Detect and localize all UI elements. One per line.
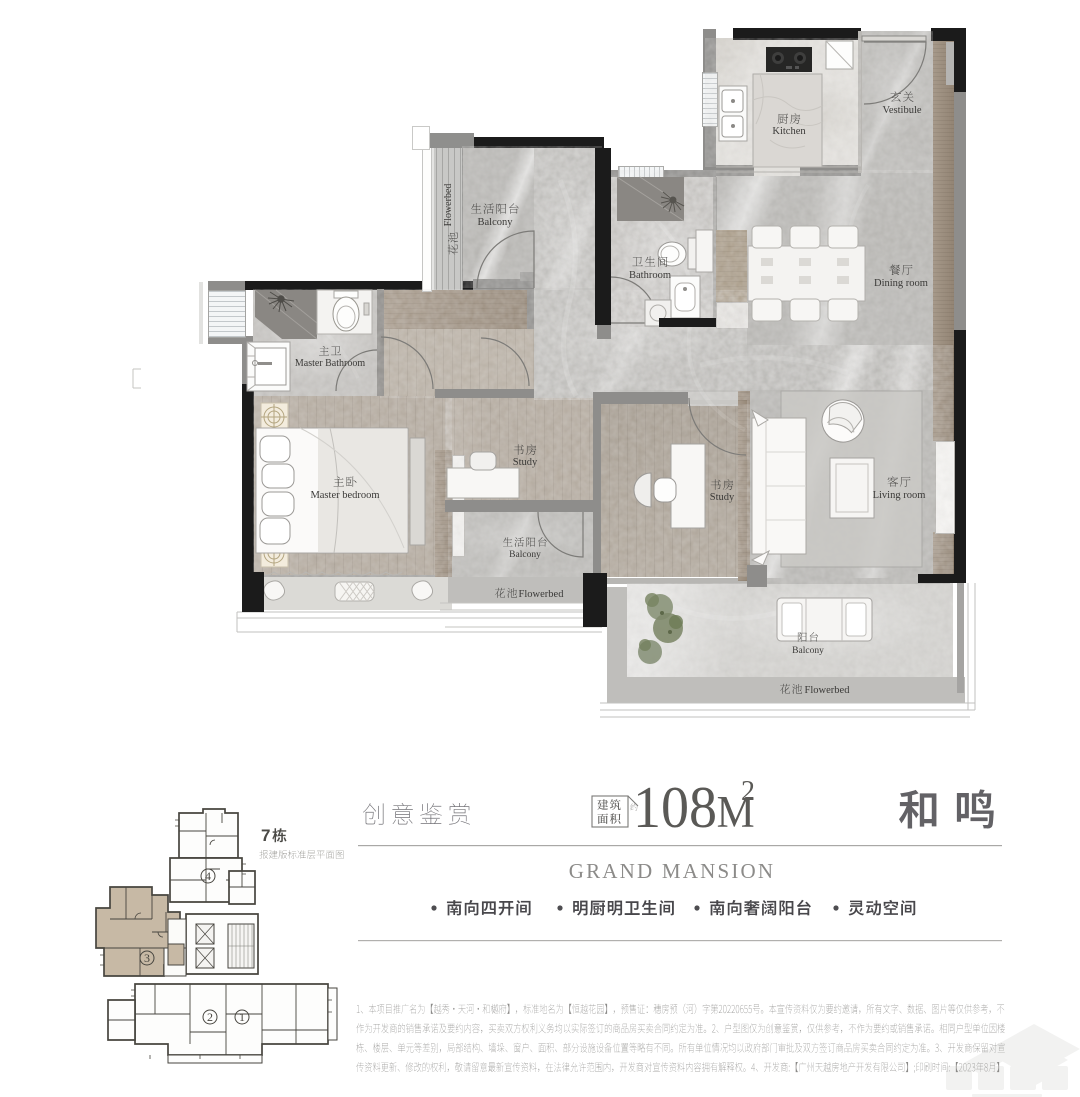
svg-text:2: 2 [741, 776, 755, 807]
svg-text:7: 7 [261, 826, 270, 845]
svg-text:1: 1 [239, 1010, 245, 1024]
svg-text:4: 4 [205, 869, 211, 883]
svg-text:GRAND MANSION: GRAND MANSION [569, 859, 776, 883]
svg-text:2: 2 [207, 1010, 213, 1024]
svg-text:M: M [717, 788, 755, 837]
svg-text:108: 108 [633, 776, 717, 841]
svg-text:3: 3 [144, 951, 150, 965]
